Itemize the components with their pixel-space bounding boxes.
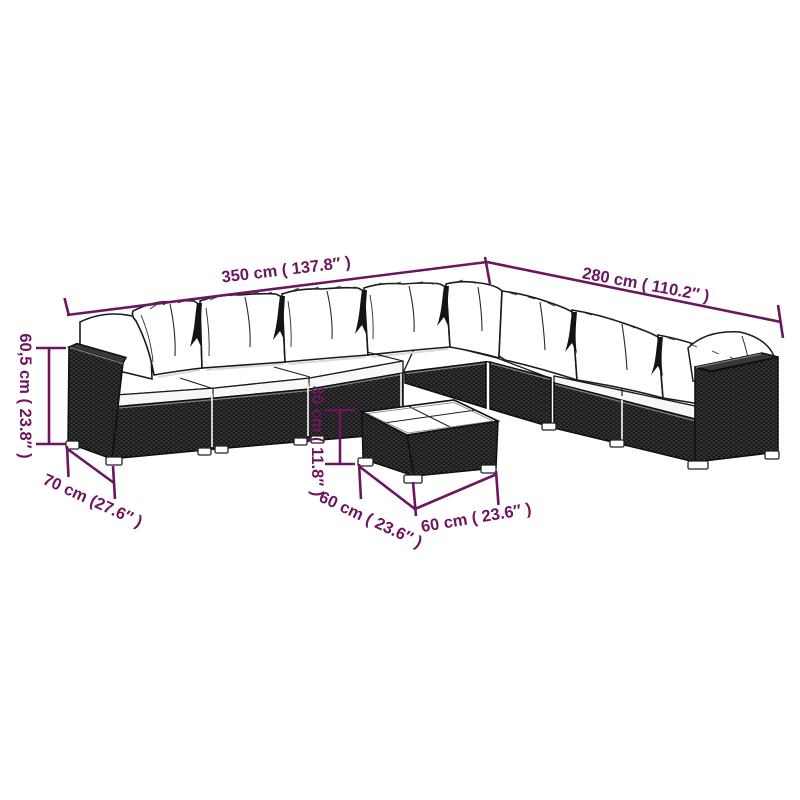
svg-text:60,5 cm ( 23.8″ ): 60,5 cm ( 23.8″ ) bbox=[16, 333, 34, 458]
svg-text:30 cm ( 11.8″ ): 30 cm ( 11.8″ ) bbox=[308, 386, 326, 497]
